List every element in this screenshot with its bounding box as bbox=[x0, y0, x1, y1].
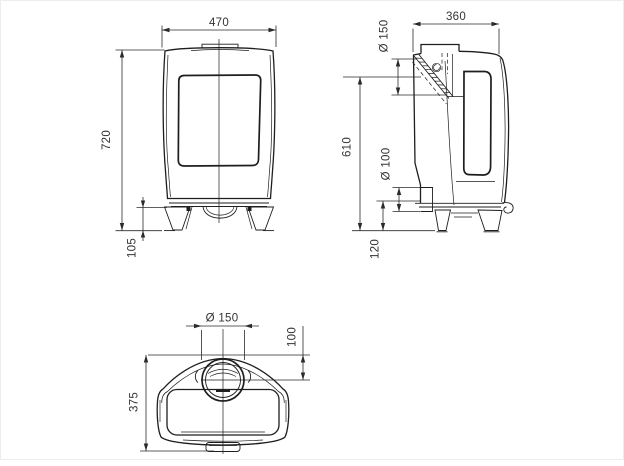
side-top-front-outline bbox=[459, 51, 509, 202]
dim-top-total-depth-label: 375 bbox=[129, 392, 141, 412]
side-panel-step-seam bbox=[453, 54, 464, 97]
top-collar-clamp-right bbox=[248, 371, 251, 383]
dim-top-flue-to-rear: 100 bbox=[148, 326, 310, 380]
side-air-inlet-stub bbox=[421, 188, 433, 212]
dim-top-flue-diameter-label: Ø 150 bbox=[206, 313, 239, 325]
dim-top-flue-diameter: Ø 150 bbox=[186, 313, 259, 361]
front-right-seam bbox=[268, 55, 272, 197]
dim-side-air-inlet-diameter: Ø 100 bbox=[381, 148, 421, 212]
dim-front-height-label: 720 bbox=[101, 130, 113, 150]
top-view bbox=[157, 329, 289, 454]
dim-side-air-inlet-diameter-label: Ø 100 bbox=[381, 148, 393, 181]
technical-drawing-page: 470 720 105 bbox=[0, 0, 624, 460]
dim-side-rear-flue-diameter-label: Ø 150 bbox=[379, 20, 391, 53]
front-top-plate-seam bbox=[191, 50, 249, 51]
dim-front-leg-height: 105 bbox=[127, 197, 168, 258]
stove-dimension-drawing: 470 720 105 bbox=[1, 1, 624, 461]
side-door-handle bbox=[502, 203, 513, 214]
front-leg-bolt-right bbox=[248, 208, 252, 212]
top-collar-clamp-left bbox=[195, 371, 198, 383]
side-flue-collar bbox=[421, 45, 459, 54]
front-ash-lip-inner bbox=[206, 207, 234, 216]
front-ash-lip-outer bbox=[203, 207, 237, 219]
dim-side-rear-flue-diameter: Ø 150 bbox=[379, 20, 447, 95]
dim-front-leg-height-label: 105 bbox=[127, 238, 139, 258]
dim-top-total-depth: 375 bbox=[129, 355, 215, 451]
side-view bbox=[413, 45, 514, 232]
front-left-seam bbox=[166, 55, 170, 197]
side-rear-wall bbox=[414, 54, 422, 204]
front-door-glass bbox=[178, 75, 260, 166]
dim-side-depth-label: 360 bbox=[446, 11, 466, 23]
front-view bbox=[163, 39, 275, 231]
side-leg-front bbox=[478, 210, 502, 231]
front-leg-bolt-left bbox=[187, 208, 191, 212]
side-front-seam bbox=[500, 58, 505, 202]
top-flue-damper-mark bbox=[216, 389, 230, 392]
dim-side-depth: 360 bbox=[413, 11, 499, 54]
side-rear-flue-knockout bbox=[413, 62, 447, 104]
side-leg-rear bbox=[435, 210, 451, 231]
dim-side-air-inlet-height: 120 bbox=[370, 201, 421, 259]
side-damper-curl bbox=[434, 65, 440, 71]
side-glass-window bbox=[464, 72, 491, 176]
dim-front-width-label: 470 bbox=[209, 17, 229, 29]
front-leg-left bbox=[165, 207, 191, 230]
dim-top-flue-to-rear-label: 100 bbox=[287, 327, 299, 347]
dim-side-flue-centre-height-label: 610 bbox=[342, 137, 354, 157]
dim-front-height: 720 bbox=[101, 50, 165, 231]
front-leg-right bbox=[248, 207, 274, 230]
dim-side-air-inlet-height-label: 120 bbox=[370, 239, 382, 259]
